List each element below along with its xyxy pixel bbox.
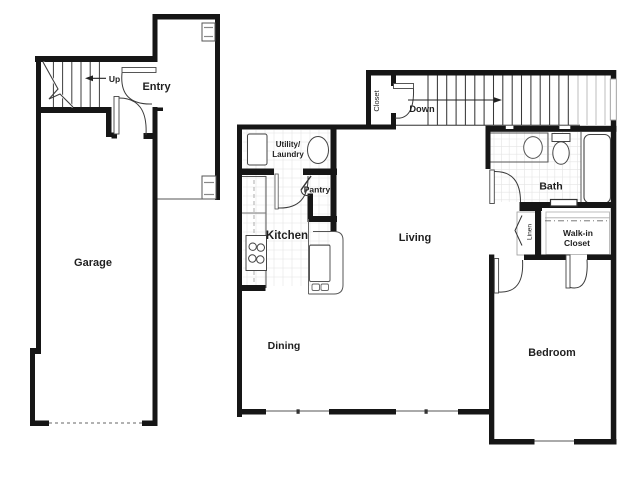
svg-text:Down: Down [409,104,435,114]
svg-text:Closet: Closet [564,238,590,248]
svg-text:Bath: Bath [539,181,562,193]
svg-text:Laundry: Laundry [272,150,304,159]
svg-text:Garage: Garage [74,257,112,269]
svg-text:Walk-in: Walk-in [563,228,593,238]
svg-text:Kitchen: Kitchen [266,230,308,242]
svg-text:Bedroom: Bedroom [528,347,575,359]
svg-text:Entry: Entry [142,81,171,93]
svg-text:Utility/: Utility/ [276,140,301,149]
svg-text:Linen: Linen [527,224,534,240]
svg-text:Closet: Closet [372,89,381,111]
svg-text:Up: Up [109,74,120,84]
svg-text:Living: Living [399,232,431,244]
svg-text:Dining: Dining [268,340,301,352]
svg-text:Pantry: Pantry [304,185,331,195]
